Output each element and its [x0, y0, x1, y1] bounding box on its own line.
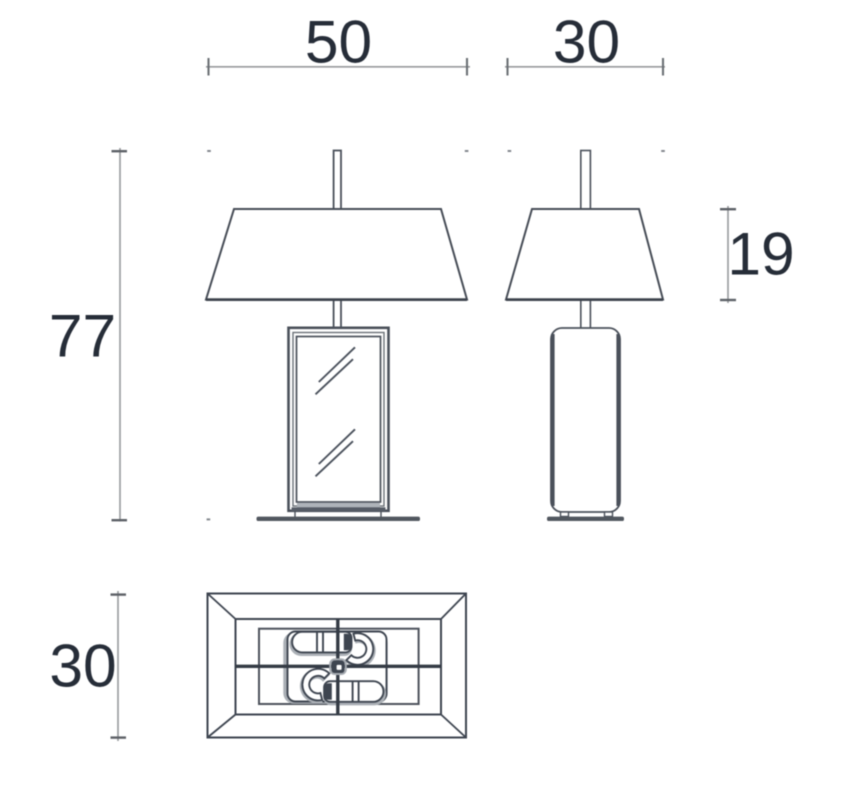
svg-text:30: 30	[553, 7, 620, 75]
svg-text:77: 77	[49, 302, 116, 370]
svg-text:19: 19	[727, 219, 794, 287]
svg-text:50: 50	[305, 7, 372, 75]
svg-text:30: 30	[49, 632, 116, 700]
